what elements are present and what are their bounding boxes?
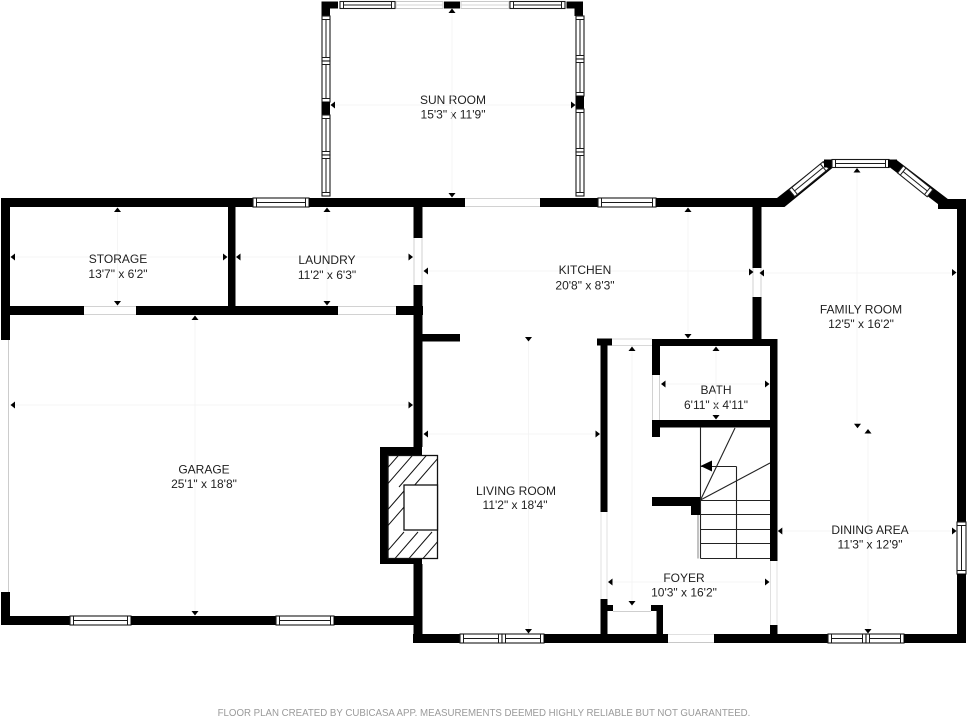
svg-text:11'3" x 12'9": 11'3" x 12'9" [838, 538, 903, 552]
svg-text:10'3" x 16'2": 10'3" x 16'2" [651, 586, 717, 600]
svg-text:11'2" x 6'3": 11'2" x 6'3" [298, 268, 356, 282]
svg-text:13'7" x 6'2": 13'7" x 6'2" [88, 267, 147, 281]
svg-text:DINING AREA: DINING AREA [831, 523, 908, 537]
svg-text:FLOOR PLAN CREATED BY CUBICASA: FLOOR PLAN CREATED BY CUBICASA APP. MEAS… [218, 708, 751, 719]
svg-text:FAMILY ROOM: FAMILY ROOM [820, 303, 902, 317]
svg-text:STORAGE: STORAGE [89, 252, 147, 266]
svg-text:KITCHEN: KITCHEN [559, 263, 612, 277]
svg-text:FOYER: FOYER [663, 571, 705, 585]
svg-text:25'1" x 18'8": 25'1" x 18'8" [171, 477, 237, 491]
svg-text:LIVING ROOM: LIVING ROOM [476, 484, 556, 498]
svg-text:11'2" x 18'4": 11'2" x 18'4" [483, 498, 548, 512]
svg-text:GARAGE: GARAGE [178, 463, 229, 477]
svg-text:LAUNDRY: LAUNDRY [298, 253, 355, 267]
svg-text:15'3" x 11'9": 15'3" x 11'9" [421, 108, 486, 122]
svg-text:12'5" x 16'2": 12'5" x 16'2" [828, 317, 894, 331]
svg-text:20'8" x 8'3": 20'8" x 8'3" [555, 279, 614, 293]
